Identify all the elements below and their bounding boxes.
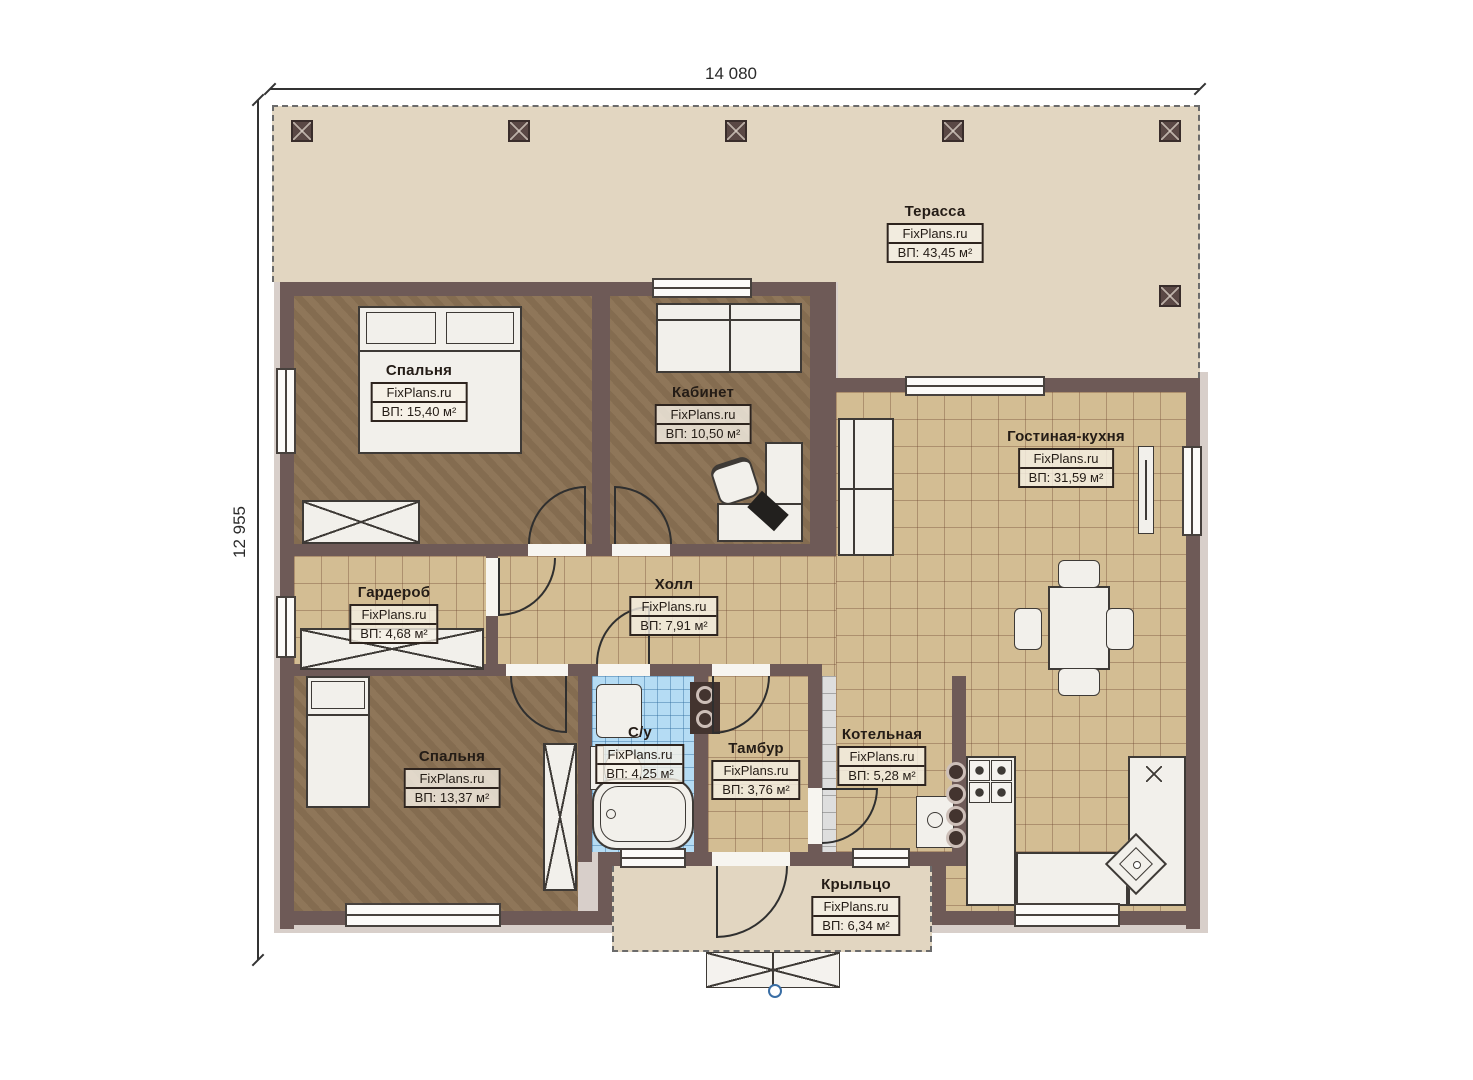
room-label-terrace: Терасса FixPlans.ru ВП: 43,45 м² (887, 203, 984, 263)
door-opening (712, 664, 770, 676)
wall (822, 386, 836, 556)
room-name: Крыльцо (821, 876, 891, 893)
entrance-door-leaf (716, 866, 718, 938)
room-name: Терасса (905, 203, 966, 220)
brand-watermark: FixPlans.ru (889, 225, 982, 244)
wardrobe-icon (302, 500, 420, 544)
wall (598, 852, 612, 925)
room-area: ВП: 31,59 м² (1020, 469, 1113, 486)
stove-icon (969, 760, 1013, 804)
room-info-box: FixPlans.ru ВП: 43,45 м² (887, 223, 984, 263)
chair-icon (1058, 560, 1100, 588)
drain-icon (606, 809, 616, 819)
terrace-area (838, 282, 1200, 378)
brand-watermark: FixPlans.ru (839, 748, 924, 767)
boiler-cylinder-icon (946, 828, 966, 848)
terrace-column (508, 120, 530, 142)
window (852, 848, 910, 868)
room-label-vestibule: Тамбур FixPlans.ru ВП: 3,76 м² (711, 740, 800, 800)
brand-watermark: FixPlans.ru (373, 384, 466, 403)
room-area: ВП: 5,28 м² (839, 767, 924, 784)
room-info-box: FixPlans.ru ВП: 4,25 м² (595, 744, 684, 784)
room-label-hall: Холл FixPlans.ru ВП: 7,91 м² (629, 576, 718, 636)
room-label-wardrobe: Гардероб FixPlans.ru ВП: 4,68 м² (349, 584, 438, 644)
window (345, 903, 501, 927)
room-label-porch: Крыльцо FixPlans.ru ВП: 6,34 м² (811, 876, 900, 936)
room-info-box: FixPlans.ru ВП: 31,59 м² (1018, 448, 1115, 488)
window (276, 596, 296, 658)
porch-steps-icon (706, 952, 840, 988)
room-area: ВП: 7,91 м² (631, 617, 716, 634)
door-opening (598, 664, 650, 676)
room-info-box: FixPlans.ru ВП: 3,76 м² (711, 760, 800, 800)
wall (280, 282, 836, 296)
sink-drain (1133, 861, 1141, 869)
room-name: Тамбур (728, 740, 784, 757)
room-area: ВП: 4,25 м² (597, 765, 682, 782)
counter-x-mark (1146, 766, 1162, 782)
chair-icon (1106, 608, 1134, 650)
dimension-width-label: 14 080 (705, 64, 757, 84)
room-name: Спальня (386, 362, 452, 379)
dimension-line-top (270, 88, 1200, 90)
terrace-column (1159, 285, 1181, 307)
door-leaf (565, 676, 567, 733)
pillow-icon (366, 312, 436, 344)
brand-watermark: FixPlans.ru (631, 598, 716, 617)
burner-icon (991, 782, 1012, 803)
door-opening (486, 558, 498, 616)
terrace-edge-dashed (1198, 105, 1200, 378)
sofa-icon (656, 303, 802, 373)
burner-icon (969, 760, 990, 781)
room-name: С/у (628, 724, 652, 741)
brand-watermark: FixPlans.ru (713, 762, 798, 781)
chair-icon (1058, 668, 1100, 696)
room-info-box: FixPlans.ru ВП: 6,34 м² (811, 896, 900, 936)
appliance-door-icon (927, 812, 943, 828)
pillow-icon (446, 312, 514, 344)
room-area: ВП: 10,50 м² (657, 425, 750, 442)
burner-icon (991, 760, 1012, 781)
terrace-column (1159, 120, 1181, 142)
window (1014, 903, 1120, 927)
room-name: Гостиная-кухня (1007, 428, 1125, 445)
room-info-box: FixPlans.ru ВП: 10,50 м² (655, 404, 752, 444)
wardrobe-icon (543, 743, 577, 891)
brand-watermark: FixPlans.ru (351, 606, 436, 625)
room-name: Гардероб (358, 584, 431, 601)
room-info-box: FixPlans.ru ВП: 5,28 м² (837, 746, 926, 786)
room-name: Кабинет (672, 384, 734, 401)
sofa-icon (838, 418, 894, 556)
terrace-column (291, 120, 313, 142)
room-label-bedroom-2: Спальня FixPlans.ru ВП: 13,37 м² (404, 748, 501, 808)
room-area: ВП: 4,68 м² (351, 625, 436, 642)
room-label-bathroom: С/у FixPlans.ru ВП: 4,25 м² (595, 724, 684, 784)
boiler-cylinder-icon (946, 762, 966, 782)
dining-table-icon (1048, 586, 1110, 670)
room-label-living-kitchen: Гостиная-кухня FixPlans.ru ВП: 31,59 м² (1007, 428, 1125, 488)
window (1182, 446, 1202, 536)
room-area: ВП: 6,34 м² (813, 917, 898, 934)
window (652, 278, 752, 298)
brand-watermark: FixPlans.ru (657, 406, 750, 425)
door-leaf (584, 486, 586, 544)
door-leaf (822, 788, 878, 790)
room-area: ВП: 15,40 м² (373, 403, 466, 420)
room-name: Холл (655, 576, 693, 593)
door-leaf (498, 558, 500, 616)
terrace-edge-dashed (272, 105, 1200, 107)
room-name: Спальня (419, 748, 485, 765)
wall (822, 282, 836, 392)
terrace-column (942, 120, 964, 142)
room-area: ВП: 43,45 м² (889, 244, 982, 261)
terrace-edge-dashed (272, 105, 274, 282)
door-opening (528, 544, 586, 556)
bathtub-icon (592, 778, 694, 850)
porch-edge-dashed (612, 866, 614, 952)
brand-watermark: FixPlans.ru (813, 898, 898, 917)
terrace-column (725, 120, 747, 142)
room-info-box: FixPlans.ru ВП: 7,91 м² (629, 596, 718, 636)
tv-unit-icon (1138, 446, 1154, 534)
window (276, 368, 296, 454)
room-label-bedroom-1: Спальня FixPlans.ru ВП: 15,40 м² (371, 362, 468, 422)
floor-plan: 14 080 12 955 (0, 0, 1473, 1080)
room-area: ВП: 3,76 м² (713, 781, 798, 798)
room-label-boiler-room: Котельная FixPlans.ru ВП: 5,28 м² (837, 726, 926, 786)
room-info-box: FixPlans.ru ВП: 15,40 м² (371, 382, 468, 422)
wall (932, 852, 946, 925)
brand-watermark: FixPlans.ru (406, 770, 499, 789)
entry-marker-icon (768, 984, 782, 998)
room-label-office: Кабинет FixPlans.ru ВП: 10,50 м² (655, 384, 752, 444)
window (905, 376, 1045, 396)
boiler-cylinder-icon (946, 784, 966, 804)
wall (592, 296, 610, 556)
window (620, 848, 686, 868)
room-info-box: FixPlans.ru ВП: 4,68 м² (349, 604, 438, 644)
room-area: ВП: 13,37 м² (406, 789, 499, 806)
door-opening (612, 544, 670, 556)
door-leaf (712, 676, 714, 734)
brand-watermark: FixPlans.ru (1020, 450, 1113, 469)
dimension-height-label: 12 955 (230, 506, 250, 558)
room-info-box: FixPlans.ru ВП: 13,37 м² (404, 768, 501, 808)
room-name: Котельная (842, 726, 922, 743)
door-opening (808, 788, 822, 844)
dimension-line-left (257, 100, 259, 960)
wall (810, 296, 822, 556)
door-opening (712, 852, 790, 866)
pillow-icon (311, 681, 365, 709)
door-leaf (614, 486, 616, 544)
chair-icon (1014, 608, 1042, 650)
door-opening (506, 664, 568, 676)
boiler-cylinder-icon (946, 806, 966, 826)
burner-icon (969, 782, 990, 803)
brand-watermark: FixPlans.ru (597, 746, 682, 765)
